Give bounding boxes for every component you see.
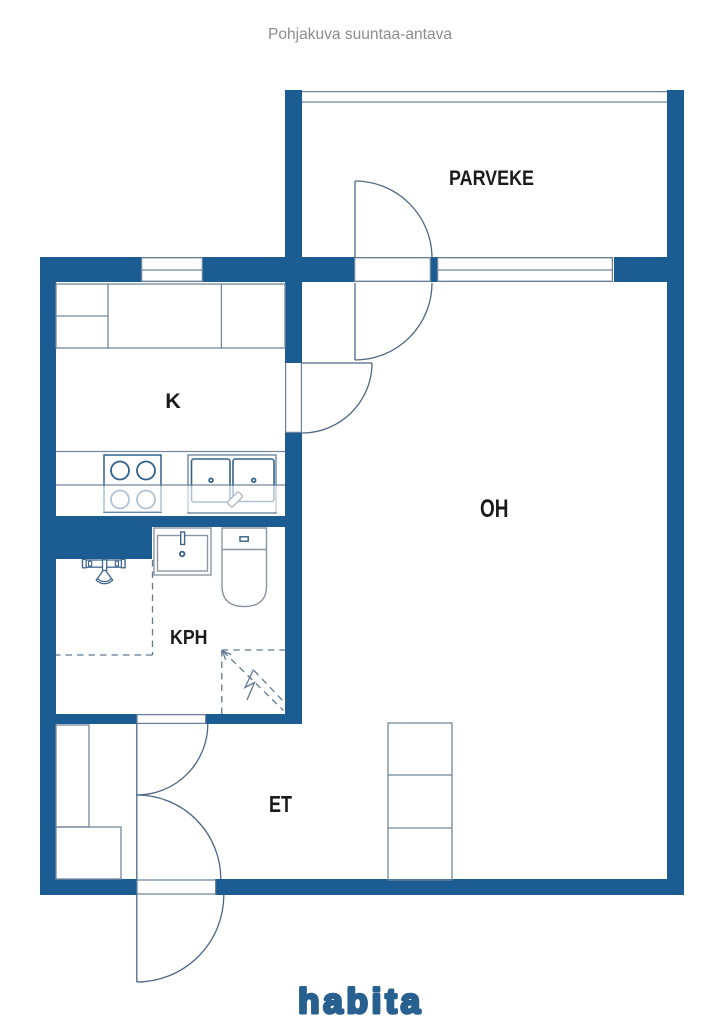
svg-text:ET: ET xyxy=(269,791,292,817)
svg-text:PARVEKE: PARVEKE xyxy=(449,166,534,190)
svg-text:OH: OH xyxy=(480,495,509,523)
svg-text:KPH: KPH xyxy=(170,627,208,649)
svg-text:K: K xyxy=(165,389,181,413)
svg-text:Pohjakuva suuntaa-antava: Pohjakuva suuntaa-antava xyxy=(268,26,452,43)
svg-text:habita: habita xyxy=(298,982,424,1021)
